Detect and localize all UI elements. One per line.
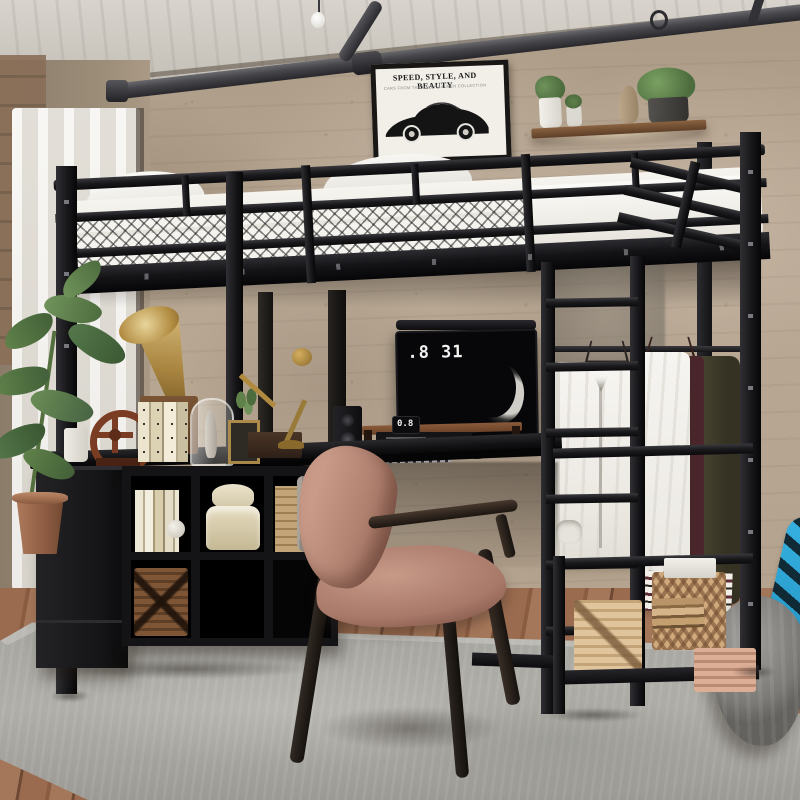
cabinet-kick-line xyxy=(36,620,128,623)
gear-stand xyxy=(96,458,140,466)
gear-hub xyxy=(109,429,121,441)
ladder-rung-4 xyxy=(546,493,638,504)
book-stack xyxy=(651,597,704,629)
shelf-bird-figurine xyxy=(617,85,639,124)
hat-box-large xyxy=(206,506,260,550)
hanger-1 xyxy=(585,341,630,364)
ladder-foot-shadow xyxy=(528,706,658,724)
cubby-books-cell xyxy=(131,476,191,552)
white-shirt-cuff xyxy=(556,520,582,544)
cloche-figurine xyxy=(205,410,217,458)
desk-clock-text: 0.8 xyxy=(397,419,413,429)
post-right-foot-shadow xyxy=(726,664,782,680)
shelf-basket-square xyxy=(574,600,642,672)
cubby-hatbox-cell xyxy=(200,476,264,552)
post-left-foot-shadow xyxy=(44,688,96,704)
hanging-bulb xyxy=(311,12,325,28)
white-cup xyxy=(64,428,88,462)
cubby-wicker-cell-2 xyxy=(200,560,264,638)
desk-digital-clock: 0.8 xyxy=(392,416,420,434)
wicker-basket-dark-2 xyxy=(204,568,260,636)
speaker-cone-top xyxy=(341,414,354,427)
pipe-end-cap xyxy=(106,80,128,102)
ladder-rung-1 xyxy=(546,297,638,308)
right-shelf-front-leg xyxy=(553,556,565,714)
ladder-rung-3 xyxy=(546,427,638,438)
lamp-shade xyxy=(292,348,312,366)
lamp-base xyxy=(278,440,304,449)
patterned-books xyxy=(138,402,188,462)
monitor-clock-text: .8 31 xyxy=(407,342,464,363)
wicker-basket-dark-1 xyxy=(134,568,188,636)
pot-rim xyxy=(12,492,68,504)
chair-floor-shadow xyxy=(290,700,530,756)
ladder-rung-2 xyxy=(546,361,638,372)
room-photo: SPEED, STYLE, AND BEAUTY CARS FROM THE R… xyxy=(0,0,800,800)
white-box-on-basket xyxy=(664,558,716,578)
cubby-wicker-cell-1 xyxy=(131,560,191,638)
cubby-ball-ornament xyxy=(167,520,185,538)
cabinet-floor-shadow xyxy=(30,656,340,682)
white-shirt-placket xyxy=(599,388,602,548)
pipe-hanger-ring xyxy=(650,10,668,30)
